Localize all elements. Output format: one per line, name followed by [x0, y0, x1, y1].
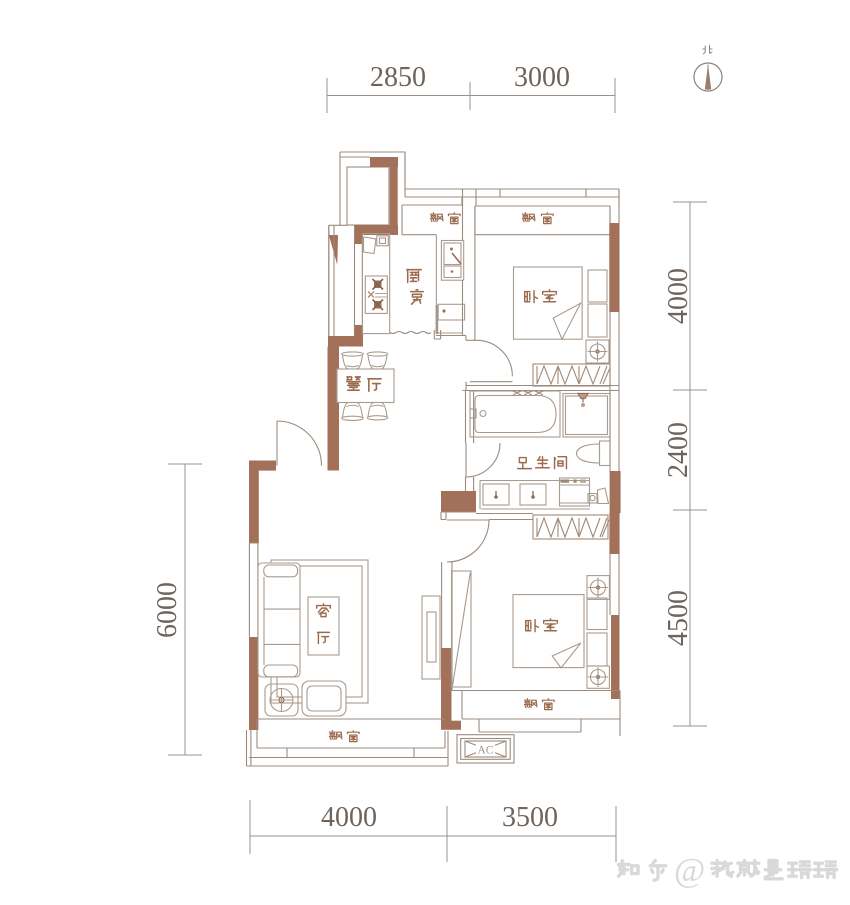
- svg-text:@: @: [674, 852, 705, 889]
- svg-text:3000: 3000: [514, 62, 570, 93]
- svg-text:6000: 6000: [152, 582, 183, 638]
- svg-text:4000: 4000: [663, 268, 694, 324]
- svg-text:2400: 2400: [663, 422, 694, 478]
- svg-text:2850: 2850: [370, 62, 426, 93]
- svg-text:4000: 4000: [321, 802, 377, 833]
- svg-text:4500: 4500: [663, 590, 694, 646]
- svg-text:3500: 3500: [502, 802, 558, 833]
- svg-text:AC: AC: [478, 745, 494, 757]
